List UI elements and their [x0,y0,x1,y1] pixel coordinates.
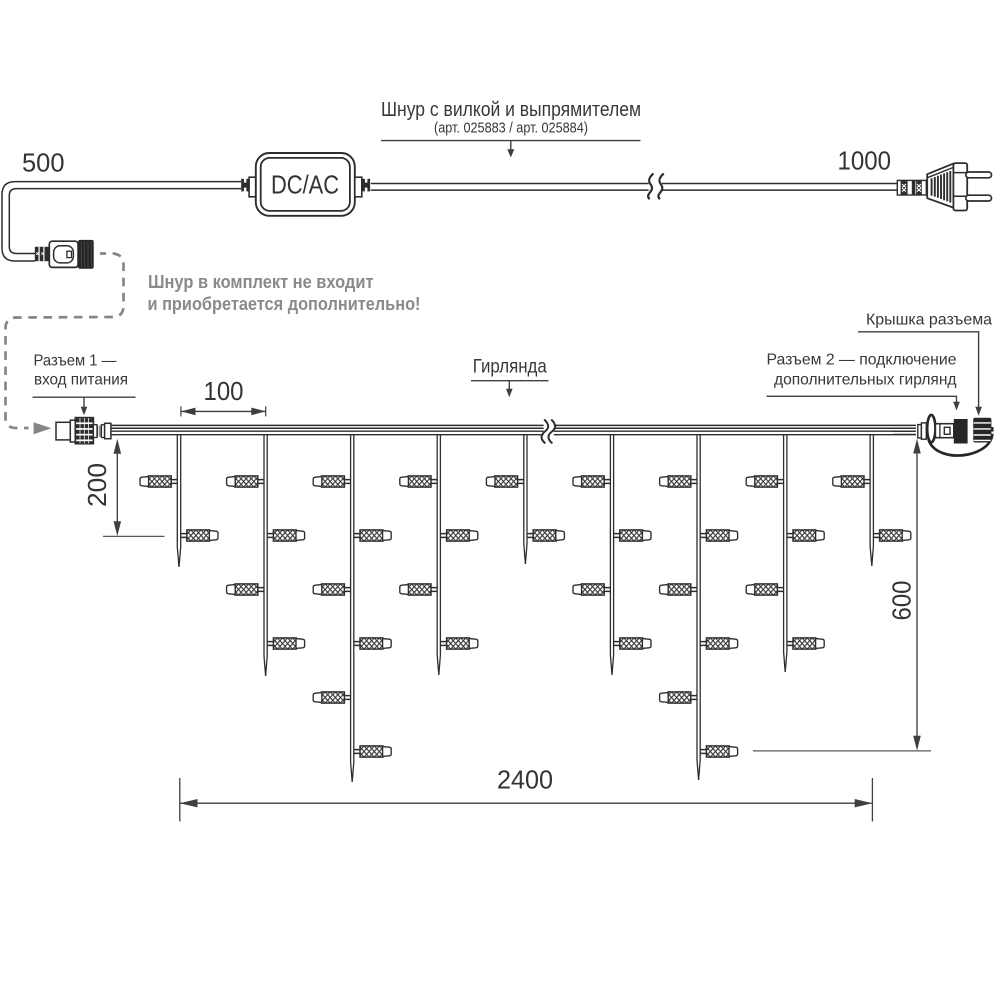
svg-text:DC/AC: DC/AC [271,171,339,199]
svg-text:1000: 1000 [838,145,892,175]
svg-text:и приобретается дополнительно!: и приобретается дополнительно! [148,294,421,314]
svg-text:Шнур с вилкой и выпрямителем: Шнур с вилкой и выпрямителем [381,98,641,121]
svg-text:дополнительных гирлянд: дополнительных гирлянд [774,372,957,389]
svg-text:Разъем 1 —: Разъем 1 — [34,353,117,370]
svg-text:Шнур в комплект не входит: Шнур в комплект не входит [148,272,374,292]
svg-text:2400: 2400 [497,764,553,794]
svg-text:Гирлянда: Гирлянда [473,356,547,378]
svg-text:вход питания: вход питания [34,371,128,388]
svg-text:500: 500 [22,148,65,178]
svg-text:(арт. 025883 / арт. 025884): (арт. 025883 / арт. 025884) [434,121,588,137]
svg-text:200: 200 [82,463,112,507]
svg-text:600: 600 [887,581,917,621]
svg-text:Разъем 2 — подключение: Разъем 2 — подключение [767,352,957,369]
svg-text:Крышка разъема: Крышка разъема [866,311,992,328]
svg-text:100: 100 [204,376,244,406]
